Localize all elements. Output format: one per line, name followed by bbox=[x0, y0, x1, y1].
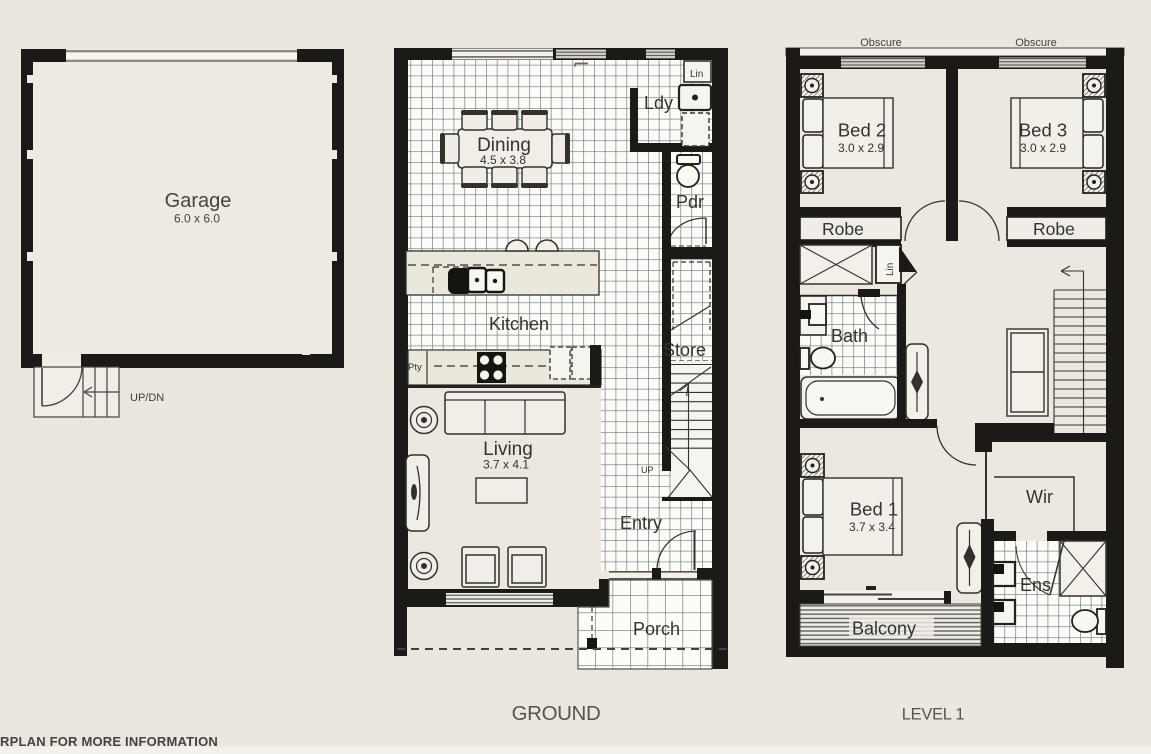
svg-text:UP/DN: UP/DN bbox=[130, 392, 164, 404]
svg-text:4.5 x 3.8: 4.5 x 3.8 bbox=[480, 153, 526, 167]
svg-text:Balcony: Balcony bbox=[852, 619, 916, 639]
svg-text:Porch: Porch bbox=[633, 619, 680, 639]
svg-text:Bath: Bath bbox=[831, 326, 868, 346]
svg-text:LEVEL 1: LEVEL 1 bbox=[902, 706, 965, 724]
svg-text:Store: Store bbox=[663, 340, 706, 360]
svg-text:3.7 x 4.1: 3.7 x 4.1 bbox=[483, 458, 529, 472]
svg-text:Bed 3: Bed 3 bbox=[1019, 120, 1067, 141]
svg-text:6.0 x 6.0: 6.0 x 6.0 bbox=[174, 212, 220, 226]
svg-text:RPLAN FOR MORE INFORMATION: RPLAN FOR MORE INFORMATION bbox=[0, 734, 218, 749]
svg-text:Ens: Ens bbox=[1020, 575, 1051, 595]
svg-text:Robe: Robe bbox=[1033, 219, 1075, 239]
svg-text:Ldy: Ldy bbox=[644, 93, 673, 113]
svg-text:Lin: Lin bbox=[690, 69, 703, 80]
svg-text:3.7 x 3.4: 3.7 x 3.4 bbox=[849, 520, 895, 534]
svg-text:Kitchen: Kitchen bbox=[489, 314, 549, 334]
svg-text:Pty: Pty bbox=[408, 362, 422, 373]
svg-text:Robe: Robe bbox=[822, 219, 864, 239]
svg-text:Obscure: Obscure bbox=[860, 37, 902, 49]
svg-text:Wir: Wir bbox=[1026, 487, 1053, 507]
svg-text:Lin: Lin bbox=[885, 263, 896, 276]
svg-text:Garage: Garage bbox=[165, 190, 232, 212]
svg-text:3.0 x 2.9: 3.0 x 2.9 bbox=[1020, 141, 1066, 155]
svg-text:UP: UP bbox=[641, 465, 654, 475]
svg-text:Entry: Entry bbox=[620, 513, 662, 533]
svg-text:Obscure: Obscure bbox=[1015, 37, 1057, 49]
svg-text:3.0 x 2.9: 3.0 x 2.9 bbox=[838, 141, 884, 155]
svg-text:GROUND: GROUND bbox=[512, 702, 601, 725]
svg-text:Bed 2: Bed 2 bbox=[838, 120, 886, 141]
svg-text:Pdr: Pdr bbox=[676, 192, 704, 212]
svg-text:Bed 1: Bed 1 bbox=[850, 499, 898, 520]
